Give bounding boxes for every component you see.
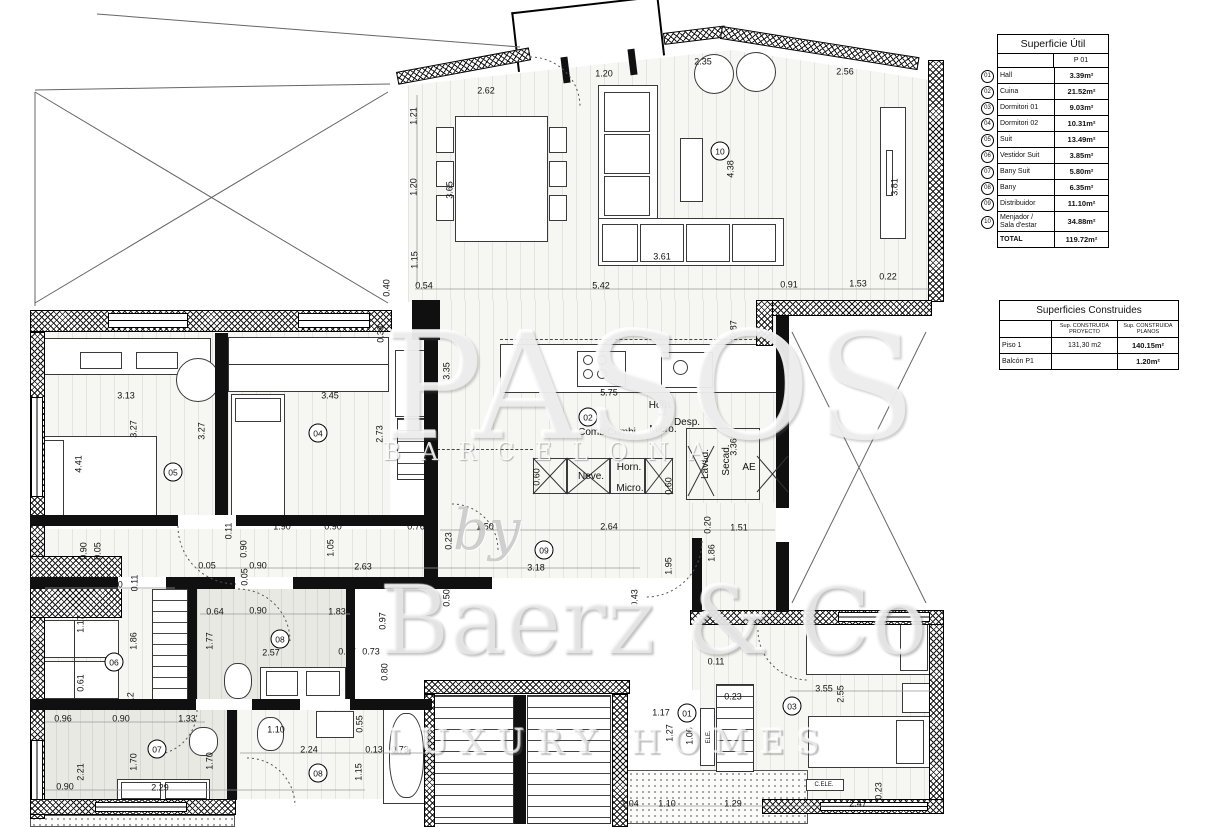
row-number-cell xyxy=(981,232,997,248)
wall xyxy=(424,680,630,694)
dimension-label: 1.70 xyxy=(130,753,139,771)
row-number-cell: 03 xyxy=(981,100,997,116)
table-title: Superficies Construides xyxy=(999,300,1179,321)
dimension-label: 1.86 xyxy=(130,632,139,650)
dimension-label: 3.13 xyxy=(117,392,135,401)
dimension-label: 0.23 xyxy=(875,782,884,800)
dimension-label: 0.55 xyxy=(356,715,365,733)
room-area-cell: 9.03m² xyxy=(1054,100,1109,116)
dimension-label: 1.53 xyxy=(849,280,867,289)
window xyxy=(31,740,43,800)
room-name-cell: Distribuidor xyxy=(997,196,1054,212)
closet-rail xyxy=(228,364,389,365)
dimension-label: 0.23 xyxy=(445,532,454,550)
burner xyxy=(597,369,607,379)
room-area-cell: 6.35m² xyxy=(1054,180,1109,196)
room-number: 01 xyxy=(678,704,697,723)
floor-plan: 2.621.202.352.561.211.201.150.400.545.42… xyxy=(0,0,1205,827)
room-name-cell: Bany Suit xyxy=(997,164,1054,180)
row-number-cell: 09 xyxy=(981,196,997,212)
dimension-label: 0.20 xyxy=(704,516,713,534)
floor-corridor xyxy=(437,503,692,578)
area-table-row: 05Suit13.49m² xyxy=(981,132,1109,148)
window xyxy=(108,313,188,328)
dimension-label: 3.27 xyxy=(198,422,207,440)
pillow xyxy=(900,621,928,671)
dimension-label: 1.20 xyxy=(595,70,613,79)
dimension-label: 1.29 xyxy=(724,800,742,809)
wall xyxy=(346,589,355,701)
room-number-badge: 04 xyxy=(981,118,994,131)
dimension-label: 1.51 xyxy=(730,524,748,533)
room-name-cell: Suit xyxy=(997,132,1054,148)
dimension-label: 1.20 xyxy=(410,178,419,196)
room-number: 08 xyxy=(271,630,290,649)
room-area-cell: 3.39m² xyxy=(1054,68,1109,84)
dimension-label: 2.63 xyxy=(354,563,372,572)
row-number-cell: 02 xyxy=(981,84,997,100)
dimension-label: 2.57 xyxy=(262,649,280,658)
dimension-label: 0.60 xyxy=(665,477,674,495)
nightstand xyxy=(902,683,932,713)
chair xyxy=(436,195,454,221)
door-opening xyxy=(196,699,252,710)
dimension-label: 0.13 xyxy=(365,746,383,755)
stairwell-flight xyxy=(527,695,611,824)
dimension-label: 1.17 xyxy=(77,615,86,633)
dimension-label: 2.21 xyxy=(77,763,86,781)
pillow xyxy=(42,440,64,517)
dimension-label: 2.62 xyxy=(477,87,495,96)
fixture-label: AE xyxy=(742,463,755,473)
wall xyxy=(776,316,789,508)
dimension-label: 1.10 xyxy=(658,800,676,809)
room-number-badge: 03 xyxy=(981,102,994,115)
terrace-strip xyxy=(30,815,235,827)
wall xyxy=(692,538,702,612)
room-name-cell: Cuina xyxy=(997,84,1054,100)
fixture-label: Micro. xyxy=(649,425,676,435)
fixture-label: CombiCombi xyxy=(578,428,636,438)
dimension-label: 5.42 xyxy=(592,282,610,291)
planos-cell: 1.20m² xyxy=(1118,354,1178,369)
room-area-cell: 34.88m² xyxy=(1054,212,1109,232)
dimension-label: 1.21 xyxy=(410,107,419,125)
fixture-label: Neve. xyxy=(578,472,604,482)
dimension-label: 4.41 xyxy=(75,455,84,473)
dimension-label: 0.11 xyxy=(708,658,725,667)
row-number-cell: 08 xyxy=(981,180,997,196)
fixture-label: C.ELE. xyxy=(814,782,833,788)
room-number: 05 xyxy=(164,463,183,482)
room-name-cell: Vestidor Suit xyxy=(997,148,1054,164)
fixture-label: Desp. xyxy=(674,418,700,428)
armchair xyxy=(176,358,220,402)
wall xyxy=(663,25,726,44)
dimension-label: 0.80 xyxy=(381,663,390,681)
room-name-cell: Dormitori 02 xyxy=(997,116,1054,132)
superficies-construides-table: Superficies Construides Sup. CONSTRUIDA … xyxy=(999,300,1179,370)
wall xyxy=(756,300,773,346)
toilet xyxy=(224,663,252,699)
chair xyxy=(549,127,567,153)
dimension-label: 3.81 xyxy=(891,178,900,196)
dimension-label: 1.30 xyxy=(105,581,123,590)
table-rows: Piso 1131,30 m2140.15m²Balcón P11.20m² xyxy=(999,338,1179,370)
dimension-label: 1.33 xyxy=(178,715,196,724)
total-value-cell: 119.72m² xyxy=(1054,232,1109,248)
sofa-cushion xyxy=(604,92,650,132)
area-table-row: 03Dormitori 019.03m² xyxy=(981,100,1109,116)
wall xyxy=(412,300,440,340)
column-label: P 01 xyxy=(1054,54,1108,67)
built-area-row: Piso 1131,30 m2140.15m² xyxy=(999,338,1179,354)
dimension-label: 0.90 xyxy=(324,523,342,532)
wall xyxy=(227,704,237,800)
table-column-header: P 01 xyxy=(997,54,1109,68)
dimension-label: 1.70 xyxy=(206,752,215,770)
dimension-label: 1.17 xyxy=(652,709,670,718)
kitchen-island xyxy=(500,344,787,393)
dimension-label: 1.95 xyxy=(665,557,674,575)
dimension-label: 3.65 xyxy=(446,181,455,199)
dimension-label: 0.73 xyxy=(362,648,380,657)
stairwell-flight xyxy=(431,695,514,824)
sofa-cushion xyxy=(732,224,776,262)
room-area-cell: 10.31m² xyxy=(1054,116,1109,132)
proyecto-cell xyxy=(1052,354,1118,369)
room-number: 03 xyxy=(783,697,802,716)
superficie-util-table: Superficie Útil P 01 01Hall3.39m²02Cuina… xyxy=(981,34,1109,248)
dining-table xyxy=(455,116,548,242)
dimension-label: 0.87 xyxy=(730,320,739,338)
room-name-cell: Menjador / Sala d'estar xyxy=(997,212,1054,232)
bathtub-inner xyxy=(389,713,424,798)
dimension-label: 0.97 xyxy=(379,612,388,630)
sink-basin xyxy=(165,782,207,799)
wall xyxy=(424,338,438,578)
sofa-cushion xyxy=(686,224,730,262)
area-table-row: 09Distribuidor11.10m² xyxy=(981,196,1109,212)
dimension-label: 1.06 xyxy=(686,727,695,745)
dimension-label: 0.12 xyxy=(127,692,136,710)
empty-cell xyxy=(998,54,1054,67)
dimension-label: 0.90 xyxy=(240,540,249,558)
dimension-label: 0.91 xyxy=(780,281,798,290)
dimension-label: 0.90 xyxy=(112,715,130,724)
dimension-label: 1.86 xyxy=(708,544,717,562)
area-table-total-row: TOTAL119.72m² xyxy=(981,232,1109,248)
wall xyxy=(215,333,228,521)
dimension-label: 0.90 xyxy=(249,607,267,616)
dressing-wardrobe xyxy=(152,588,188,700)
burner xyxy=(597,355,607,365)
wall xyxy=(929,612,944,812)
fixture-label: Lavad. xyxy=(701,449,711,479)
area-table-row: 10Menjador / Sala d'estar34.88m² xyxy=(981,212,1109,232)
row-name-cell: Balcón P1 xyxy=(1000,354,1052,369)
dimension-label: 0.43 xyxy=(631,589,640,607)
wall xyxy=(188,589,197,701)
room-name-cell: Dormitori 01 xyxy=(997,100,1054,116)
washbasin xyxy=(316,711,354,738)
room-number-badge: 05 xyxy=(981,134,994,147)
dimension-label: 3.45 xyxy=(321,392,339,401)
room-number-badge: 06 xyxy=(981,150,994,163)
dimension-label: 0.90 xyxy=(249,562,267,571)
dimension-label: 0.64 xyxy=(206,608,224,617)
dimension-label: 2.35 xyxy=(694,58,712,67)
wall xyxy=(424,694,435,827)
column-label: Sup. CONSTRUIDA PLANOS xyxy=(1118,321,1178,337)
fixture-label: ELE. xyxy=(706,730,712,743)
dimension-label: 0.11 xyxy=(131,575,140,592)
dimension-label: 0.40 xyxy=(383,279,392,297)
wardrobe-shelf xyxy=(136,352,178,369)
chair xyxy=(436,127,454,153)
dimension-label: 1.04 xyxy=(621,800,639,809)
dimension-label: 0.07 xyxy=(338,648,356,657)
planos-cell: 140.15m² xyxy=(1118,338,1178,353)
dimension-label: 0.05 xyxy=(198,562,216,571)
tv-sideboard xyxy=(880,107,906,239)
dimension-label: 3.18 xyxy=(527,564,545,573)
balcony xyxy=(627,770,808,824)
area-table-row: 06Vestidor Suit3.85m² xyxy=(981,148,1109,164)
fixture-label: Secad. xyxy=(722,444,732,475)
dimension-label: 5.75 xyxy=(600,389,618,398)
wall xyxy=(928,60,944,302)
row-number-cell: 06 xyxy=(981,148,997,164)
dimension-label: 0.90 xyxy=(56,783,74,792)
sink-basin xyxy=(266,671,298,696)
table-title: Superficie Útil xyxy=(997,34,1109,54)
sofa-cushion xyxy=(604,134,650,174)
dimension-label: 2.29 xyxy=(151,784,169,793)
chair xyxy=(549,195,567,221)
room-area-cell: 13.49m² xyxy=(1054,132,1109,148)
room-number: 09 xyxy=(535,541,554,560)
area-table-row: 01Hall3.39m² xyxy=(981,68,1109,84)
round-chair xyxy=(736,52,776,92)
row-name-cell: Piso 1 xyxy=(1000,338,1052,353)
hood-dashed-line xyxy=(500,339,787,340)
dimension-label: 0.05 xyxy=(94,542,103,560)
row-number-cell: 05 xyxy=(981,132,997,148)
room-number-badge: 08 xyxy=(981,182,994,195)
dimension-label: 2.64 xyxy=(600,523,618,532)
room-number: 10 xyxy=(711,142,730,161)
dimension-label: 0.50 xyxy=(443,589,452,607)
burner xyxy=(583,369,593,379)
room-area-cell: 3.85m² xyxy=(1054,148,1109,164)
counter-dashed-line xyxy=(437,449,533,450)
burner xyxy=(583,355,593,365)
room-name-cell: Hall xyxy=(997,68,1054,84)
dimension-label: 1.50 xyxy=(476,523,494,532)
pillow xyxy=(896,720,924,764)
room-number-badge: 10 xyxy=(981,216,994,229)
dimension-label: 0.05 xyxy=(241,568,250,586)
room-number-badge: 07 xyxy=(981,166,994,179)
room-number: 07 xyxy=(148,740,167,759)
coffee-table xyxy=(680,138,703,202)
dimension-label: 0.73 xyxy=(391,746,409,755)
chair xyxy=(549,161,567,187)
dimension-label: 0.23 xyxy=(724,693,742,702)
table-column-header: Sup. CONSTRUIDA PROYECTO Sup. CONSTRUIDA… xyxy=(999,321,1179,338)
dimension-label: 4.38 xyxy=(727,160,736,178)
room-number-badge: 09 xyxy=(981,198,994,211)
dimension-label: 2.56 xyxy=(836,68,854,77)
dimension-label: 2.24 xyxy=(300,746,318,755)
dimension-label: 1.27 xyxy=(666,724,675,742)
dimension-label: 0.61 xyxy=(77,674,86,692)
pillow xyxy=(235,398,281,422)
sink-basin xyxy=(306,671,340,696)
area-table-row: 08Bany6.35m² xyxy=(981,180,1109,196)
row-number-cell: 07 xyxy=(981,164,997,180)
door-opening xyxy=(300,699,350,710)
dimension-label: 2.47 xyxy=(849,800,867,809)
room-area-cell: 11.10m² xyxy=(1054,196,1109,212)
empty-cell xyxy=(1000,321,1052,337)
dimension-label: 0.11 xyxy=(225,523,234,540)
total-label-cell: TOTAL xyxy=(997,232,1054,248)
wall xyxy=(772,300,932,316)
window xyxy=(298,313,370,328)
room-area-cell: 21.52m² xyxy=(1054,84,1109,100)
table-rows: 01Hall3.39m²02Cuina21.52m²03Dormitori 01… xyxy=(981,68,1109,248)
room-area-cell: 5.80m² xyxy=(1054,164,1109,180)
area-table-row: 02Cuina21.52m² xyxy=(981,84,1109,100)
sofa-cushion xyxy=(602,224,638,262)
fixture-label: Horn. xyxy=(617,463,641,473)
window xyxy=(31,397,43,497)
dimension-label: 3.27 xyxy=(130,420,139,438)
dimension-label: 0.60 xyxy=(533,468,542,486)
dimension-label: 3.55 xyxy=(815,685,833,694)
room-number: 08 xyxy=(309,764,328,783)
stairwell-divider xyxy=(514,695,526,824)
dimension-label: 2.73 xyxy=(376,425,385,443)
dimension-label: 1.83 xyxy=(328,608,346,617)
sink-basin xyxy=(673,360,688,375)
dimension-label: 0.90 xyxy=(80,542,89,560)
window xyxy=(838,612,930,622)
row-number-cell: 04 xyxy=(981,116,997,132)
dimension-label: 0.96 xyxy=(54,715,72,724)
dimension-label: 0.22 xyxy=(879,273,897,282)
wall xyxy=(776,542,789,612)
area-table-row: 04Dormitori 0210.31m² xyxy=(981,116,1109,132)
built-area-row: Balcón P11.20m² xyxy=(999,354,1179,370)
dimension-label: 0.33 xyxy=(377,325,386,343)
door-opening xyxy=(118,577,166,589)
room-name-cell: Bany xyxy=(997,180,1054,196)
dimension-label: 3.35 xyxy=(443,362,452,380)
dimension-label: 0.63 xyxy=(49,581,67,590)
dimension-label: 0.76 xyxy=(407,523,425,532)
window xyxy=(820,802,928,811)
column-label: Sup. CONSTRUIDA PROYECTO xyxy=(1052,321,1118,337)
room-number: 04 xyxy=(309,424,328,443)
dimension-label: 3.61 xyxy=(653,253,671,262)
dimension-label: 1.15 xyxy=(411,251,420,269)
room-number: 06 xyxy=(105,653,124,672)
window xyxy=(95,802,187,812)
row-number-cell: 10 xyxy=(981,212,997,232)
fixture-label: Horn. xyxy=(649,401,673,411)
room-number-badge: 02 xyxy=(981,86,994,99)
dimension-label: 1.10 xyxy=(267,726,285,735)
room-number: 02 xyxy=(579,408,598,427)
area-table-row: 07Bany Suit5.80m² xyxy=(981,164,1109,180)
fixture-label: Micro. xyxy=(616,484,643,494)
row-number-cell: 01 xyxy=(981,68,997,84)
dimension-label: 2.55 xyxy=(837,685,846,703)
sofa-cushion xyxy=(604,176,650,216)
dimension-label: 1.05 xyxy=(327,539,336,557)
room-number-badge: 01 xyxy=(981,70,994,83)
dimension-label: 1.15 xyxy=(355,763,364,781)
dimension-label: 1.90 xyxy=(273,523,291,532)
proyecto-cell: 131,30 m2 xyxy=(1052,338,1118,353)
dimension-label: 1.77 xyxy=(206,632,215,650)
wardrobe-shelf xyxy=(80,352,122,369)
dimension-label: 0.54 xyxy=(415,282,433,291)
